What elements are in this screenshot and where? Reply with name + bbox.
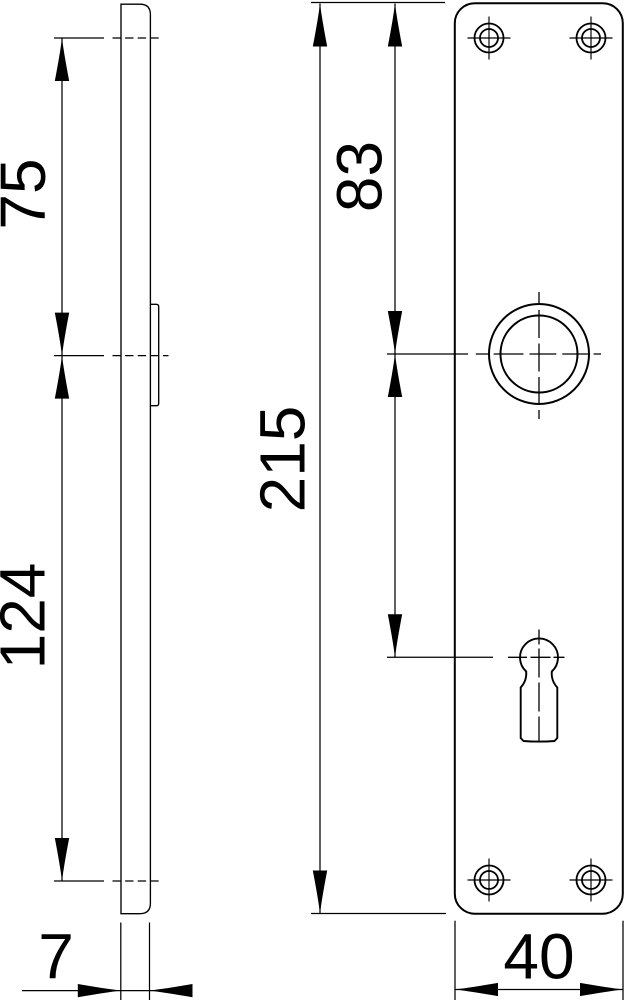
- svg-text:83: 83: [324, 141, 396, 212]
- svg-text:7: 7: [38, 921, 74, 993]
- svg-text:124: 124: [0, 563, 59, 670]
- svg-text:40: 40: [503, 920, 574, 992]
- svg-text:215: 215: [247, 406, 319, 513]
- svg-text:75: 75: [0, 158, 59, 229]
